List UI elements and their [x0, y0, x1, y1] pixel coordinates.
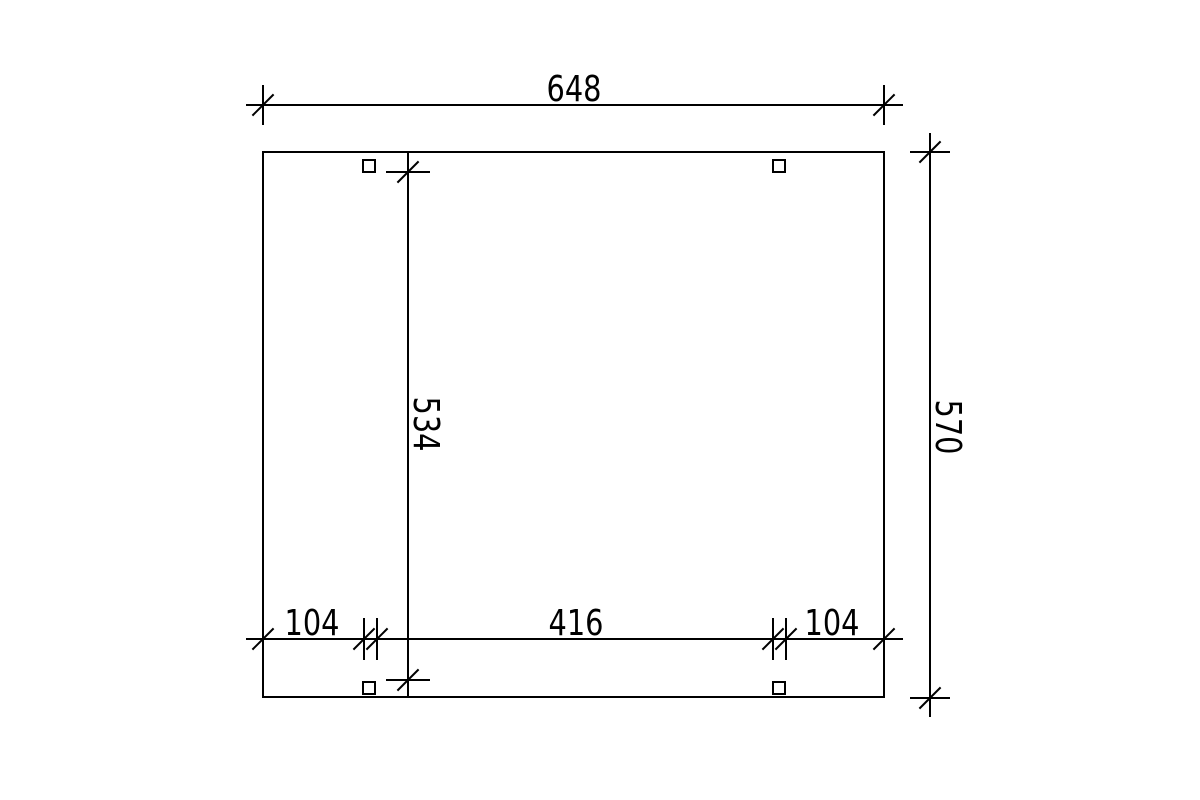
bottom-dimension-label-center: 416 — [549, 606, 604, 642]
post-top-right — [772, 159, 786, 173]
right-dimension-label: 570 — [929, 400, 965, 455]
bottom-dimension-label-left: 104 — [285, 606, 340, 642]
top-dimension-label: 648 — [547, 72, 602, 108]
inner-dimension-label: 534 — [407, 397, 443, 452]
post-bottom-right — [772, 681, 786, 695]
post-top-left — [362, 159, 376, 173]
bottom-dimension-label-right: 104 — [805, 606, 860, 642]
drawing-canvas: 648 570 534 104 416 104 — [0, 0, 1200, 800]
post-bottom-left — [362, 681, 376, 695]
